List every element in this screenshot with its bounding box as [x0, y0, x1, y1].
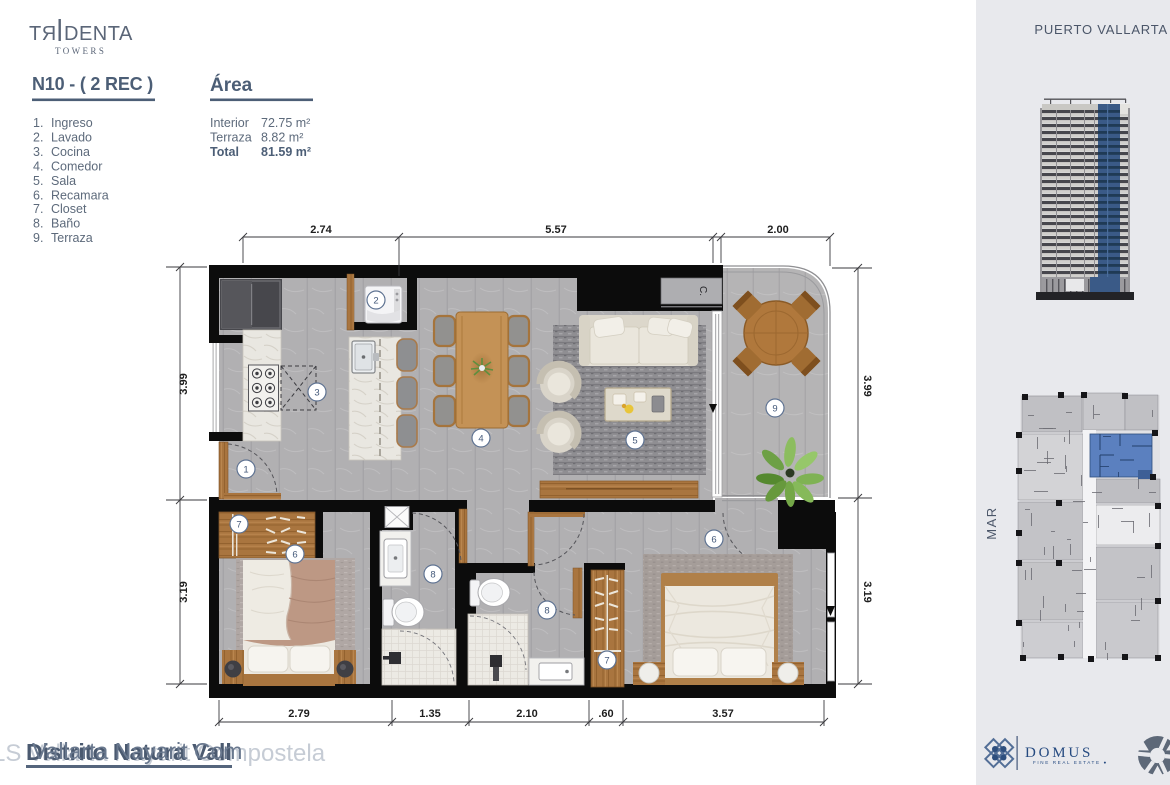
svg-text:7: 7: [604, 656, 609, 667]
svg-text:3: 3: [314, 388, 319, 399]
svg-text:Terraza: Terraza: [51, 231, 93, 245]
svg-text:3.19: 3.19: [861, 581, 873, 602]
svg-text:5.57: 5.57: [545, 224, 566, 236]
svg-text:72.75 m²: 72.75 m²: [261, 116, 310, 130]
svg-text:5: 5: [632, 436, 637, 447]
svg-text:8.: 8.: [33, 217, 43, 231]
svg-text:Lavado: Lavado: [51, 131, 92, 145]
svg-text:Baño: Baño: [51, 217, 80, 231]
svg-text:3.19: 3.19: [178, 581, 190, 602]
svg-text:Interior: Interior: [210, 116, 249, 130]
svg-text:6: 6: [711, 535, 716, 546]
svg-text:Ingreso: Ingreso: [51, 116, 93, 130]
svg-text:9: 9: [772, 404, 777, 415]
svg-text:DOMUS: DOMUS: [1025, 745, 1093, 761]
svg-text:7.: 7.: [33, 202, 43, 216]
svg-text:Recamara: Recamara: [51, 189, 109, 203]
svg-text:3.99: 3.99: [178, 373, 190, 394]
svg-text:3.57: 3.57: [712, 708, 733, 720]
svg-text:Cocina: Cocina: [51, 145, 90, 159]
svg-text:.60: .60: [598, 708, 613, 720]
svg-text:2.74: 2.74: [310, 224, 332, 236]
svg-text:1.: 1.: [33, 116, 43, 130]
svg-text:6.: 6.: [33, 189, 43, 203]
svg-text:2.: 2.: [33, 131, 43, 145]
svg-text:6: 6: [292, 550, 297, 561]
svg-text:2.00: 2.00: [767, 224, 788, 236]
svg-text:1: 1: [243, 465, 248, 476]
svg-text:TЯ: TЯ: [29, 23, 57, 45]
svg-text:2.10: 2.10: [516, 708, 537, 720]
svg-text:4: 4: [478, 434, 483, 445]
svg-text:81.59 m²: 81.59 m²: [261, 145, 311, 159]
svg-text:9.: 9.: [33, 231, 43, 245]
svg-text:Terraza: Terraza: [210, 131, 252, 145]
svg-text:8: 8: [430, 570, 435, 581]
svg-text:2.79: 2.79: [288, 708, 309, 720]
svg-text:4.: 4.: [33, 160, 43, 174]
svg-text:Comedor: Comedor: [51, 160, 102, 174]
svg-text:Closet: Closet: [51, 202, 87, 216]
svg-text:Total: Total: [210, 145, 239, 159]
svg-text:7: 7: [236, 520, 241, 531]
svg-text:3.99: 3.99: [861, 375, 873, 396]
svg-text:2: 2: [373, 296, 378, 307]
svg-text:PUERTO VALLARTA: PUERTO VALLARTA: [1034, 22, 1168, 37]
svg-text:DENTA: DENTA: [64, 23, 133, 45]
svg-text:8.82 m²: 8.82 m²: [261, 131, 303, 145]
svg-text:MAR: MAR: [984, 506, 999, 539]
svg-text:1.35: 1.35: [419, 708, 440, 720]
svg-text:3.: 3.: [33, 145, 43, 159]
svg-text:Sala: Sala: [51, 174, 76, 188]
svg-text:N10 - ( 2 REC ): N10 - ( 2 REC ): [32, 74, 153, 94]
svg-text:Área: Área: [210, 74, 253, 96]
svg-text:5.: 5.: [33, 174, 43, 188]
svg-text:TOWERS: TOWERS: [55, 46, 106, 56]
svg-text:8: 8: [544, 606, 549, 617]
svg-text:Vallarta Nayarit Com: Vallarta Nayarit Com: [32, 738, 242, 764]
svg-text:FINE REAL ESTATE ●: FINE REAL ESTATE ●: [1033, 760, 1108, 765]
svg-text:C.: C.: [697, 286, 708, 296]
